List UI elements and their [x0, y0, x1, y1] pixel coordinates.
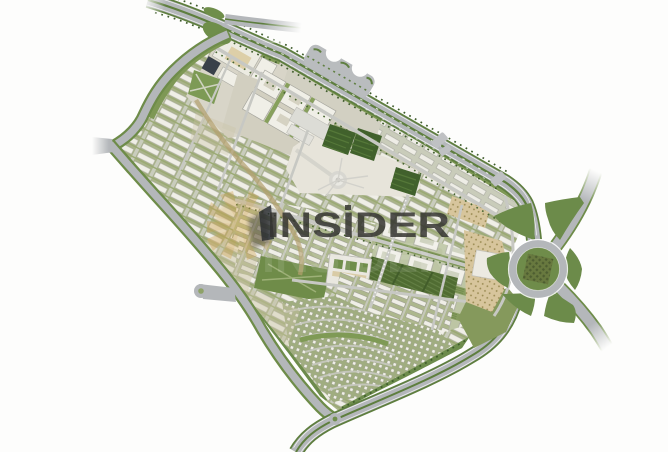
svg-text:INSIDER: INSIDER — [262, 234, 452, 281]
